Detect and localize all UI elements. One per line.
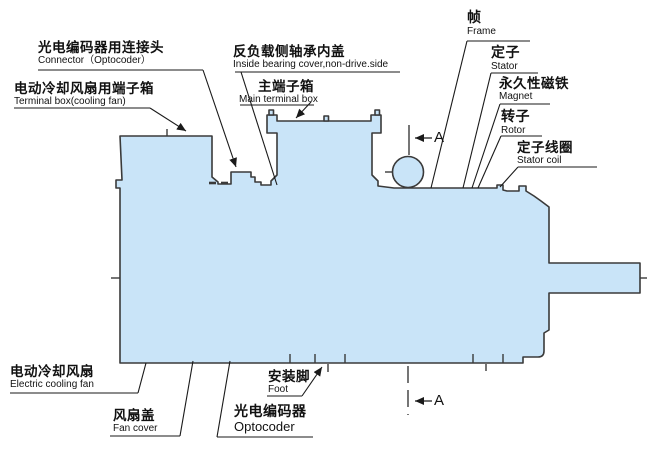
label-terminal-box-fan-zh: 电动冷却风扇用端子箱 [14,81,154,96]
label-rotor: 转子 Rotor [501,109,530,136]
label-frame-en: Frame [467,26,496,37]
label-magnet-en: Magnet [499,91,569,102]
label-stator-en: Stator [491,61,520,72]
eyebolt-shape [393,157,424,188]
label-connector-en: Connector（Optocoder） [38,55,164,66]
leader-fan-cover [180,361,193,436]
section-a-letter-bottom: A [434,392,444,409]
motor-diagram: 光电编码器用连接头 Connector（Optocoder） 电动冷却风扇用端子… [0,0,660,461]
label-main-terminal-box: 主端子箱 Main terminal box [239,79,314,105]
label-fan-cover-en: Fan cover [113,423,157,434]
label-stator-coil-en: Stator coil [517,155,573,166]
leader-terminal-box-fan [150,108,186,131]
label-main-terminal-box-en: Main terminal box [239,94,314,105]
label-terminal-box-fan-en: Terminal box(cooling fan) [14,96,154,107]
section-a-letter-top: A [434,129,444,146]
label-stator-coil-zh: 定子线圈 [517,140,573,155]
label-magnet-zh: 永久性磁铁 [499,76,569,91]
label-fan-cover: 风扇盖 Fan cover [113,408,157,434]
label-foot: 安装脚 Foot [268,369,310,395]
label-bearing-cover-zh: 反负载侧轴承内盖 [233,44,388,59]
leader-optocoder [217,361,230,437]
label-electric-cooling-fan: 电动冷却风扇 Electric cooling fan [10,364,94,390]
label-foot-zh: 安装脚 [268,369,310,384]
label-rotor-en: Rotor [501,125,530,136]
leader-stator-coil [500,167,518,187]
label-bearing-cover: 反负载侧轴承内盖 Inside bearing cover,non-drive.… [233,44,388,70]
label-optocoder: 光电编码器 Optocoder [234,404,307,434]
label-rotor-zh: 转子 [501,109,530,125]
terminal-box-nub [375,110,380,115]
label-main-terminal-box-zh: 主端子箱 [239,79,314,94]
leader-frame [431,41,467,188]
label-magnet: 永久性磁铁 Magnet [499,76,569,102]
label-foot-en: Foot [268,384,310,395]
label-electric-cooling-fan-zh: 电动冷却风扇 [10,364,94,379]
label-stator-coil: 定子线圈 Stator coil [517,140,573,166]
label-frame: 帧 Frame [467,10,496,37]
terminal-box-nub [324,116,329,121]
label-connector-zh: 光电编码器用连接头 [38,40,164,55]
label-frame-zh: 帧 [467,10,496,26]
label-optocoder-zh: 光电编码器 [234,404,307,420]
leader-magnet [472,104,500,188]
leader-electric-cooling-fan [138,363,146,393]
terminal-box-nub [269,110,274,115]
label-connector: 光电编码器用连接头 Connector（Optocoder） [38,40,164,66]
label-stator: 定子 Stator [491,45,520,72]
label-fan-cover-zh: 风扇盖 [113,408,157,423]
label-terminal-box-fan: 电动冷却风扇用端子箱 Terminal box(cooling fan) [14,81,154,107]
leader-rotor [478,136,501,188]
label-bearing-cover-en: Inside bearing cover,non-drive.side [233,59,388,70]
label-optocoder-en: Optocoder [234,420,307,435]
label-stator-zh: 定子 [491,45,520,61]
label-electric-cooling-fan-en: Electric cooling fan [10,379,94,390]
leader-stator [463,73,491,188]
